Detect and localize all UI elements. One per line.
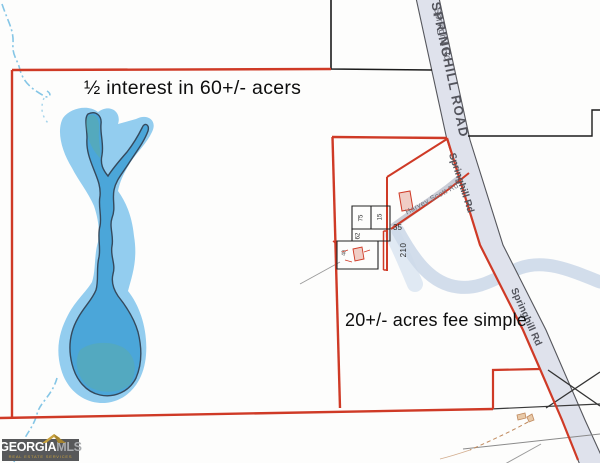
driveway-dashed [470,422,528,450]
logo-tagline: REAL ESTATE SERVICES [9,455,73,459]
annotation-half-interest: ½ interest in 60+/- acers [84,77,301,100]
parcel-number-40: 40 [341,250,347,256]
boundary-diagonal [387,139,447,177]
georgia-mls-logo: GEORGIA MLS REAL ESTATE SERVICES [2,439,79,461]
shed-footprint-2 [527,414,534,422]
creek-line-upper [2,4,50,97]
parcel-line-top [331,0,432,70]
boundary-20ac-west [333,137,341,408]
mls-peak-icon [40,433,70,443]
shed-footprint-1 [517,413,526,420]
boundary-notch [493,369,540,409]
boundary-20ac-north [332,137,447,138]
parcel-line-top-right [468,110,600,136]
parcel-number-35: 35 [393,223,402,232]
annotation-fee-simple: 20+/- acres fee simple [345,310,527,331]
driveway-faint [440,450,470,459]
parcel-number-15: 15 [378,213,384,220]
creek-line-dots [42,98,48,123]
springhill-road-east-edge [439,0,600,455]
road-label-harvey-scott: Harvey Scott Rd [404,181,460,217]
boundary-60ac-north [12,69,331,70]
logo-text-georgia: GEORGIA [0,441,56,454]
parcel-line-faint2 [505,444,541,463]
parcel-number-62: 62 [356,232,362,239]
building-footprint-2 [353,247,364,261]
boundary-south [0,409,493,418]
parcel-number-75: 75 [359,214,365,221]
map-canvas: SPRINGHILL ROAD Springhill Rd Springhill… [0,0,600,463]
parcel-line-bottom-right [490,404,600,409]
parcel-line-faint3 [300,262,340,284]
parcel-number-210: 210 [399,243,408,258]
plat-map: SPRINGHILL ROAD Springhill Rd Springhill… [0,0,600,463]
logo-text-mls: MLS [56,441,82,454]
